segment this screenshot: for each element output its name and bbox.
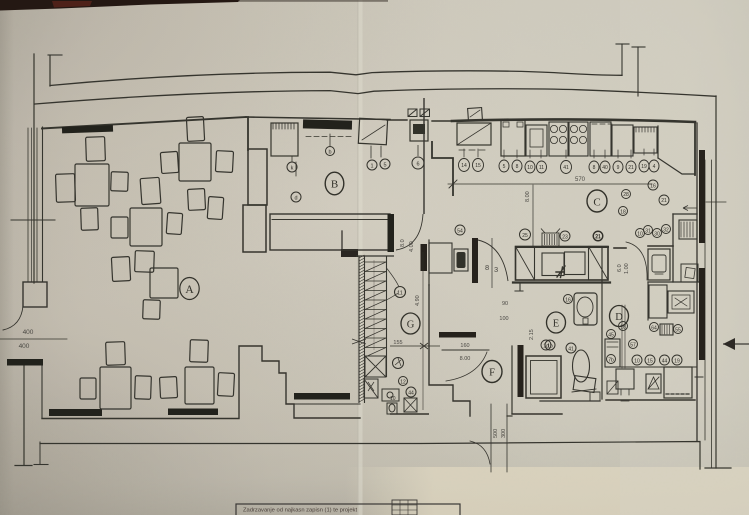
svg-text:25: 25: [522, 233, 528, 239]
svg-text:15: 15: [475, 163, 481, 169]
svg-text:16: 16: [565, 298, 571, 304]
svg-text:G: G: [407, 320, 415, 331]
svg-text:28: 28: [623, 192, 629, 198]
svg-text:41: 41: [563, 165, 569, 171]
svg-text:15: 15: [647, 359, 653, 365]
svg-text:570: 570: [575, 177, 586, 183]
svg-text:11: 11: [397, 291, 403, 297]
svg-text:400: 400: [23, 329, 34, 336]
svg-text:41: 41: [568, 347, 574, 353]
svg-text:21: 21: [628, 165, 634, 171]
svg-text:45: 45: [608, 333, 614, 339]
svg-text:18: 18: [620, 210, 626, 216]
svg-text:8: 8: [485, 263, 489, 272]
svg-text:A: A: [185, 284, 194, 296]
svg-text:5: 5: [503, 164, 506, 170]
svg-text:100: 100: [499, 316, 508, 322]
svg-text:32: 32: [663, 228, 669, 234]
svg-text:500: 500: [493, 429, 499, 438]
svg-text:C: C: [593, 197, 600, 209]
svg-text:1.00: 1.00: [624, 263, 630, 274]
svg-text:400: 400: [19, 343, 30, 350]
svg-text:F: F: [489, 368, 495, 379]
svg-text:18: 18: [620, 325, 626, 331]
svg-text:21: 21: [661, 198, 667, 204]
svg-text:90: 90: [502, 301, 508, 307]
svg-text:10: 10: [390, 396, 396, 402]
svg-text:19: 19: [641, 164, 647, 170]
svg-text:4.90: 4.90: [415, 295, 421, 306]
svg-text:300: 300: [501, 429, 507, 438]
svg-text:160: 160: [460, 343, 469, 349]
svg-text:B: B: [331, 179, 338, 191]
svg-text:64: 64: [651, 326, 657, 332]
svg-text:8: 8: [516, 164, 519, 170]
svg-text:14: 14: [461, 163, 467, 169]
svg-text:23: 23: [562, 235, 568, 241]
svg-text:19: 19: [674, 359, 680, 365]
svg-text:3: 3: [494, 265, 498, 274]
svg-text:Zadrzavanje od najkasn zapi: Zadrzavanje od najkasn zapisn (1) te pro…: [243, 508, 357, 514]
svg-text:8.00: 8.00: [525, 191, 531, 202]
svg-text:4.00: 4.00: [409, 241, 415, 252]
svg-text:10: 10: [527, 165, 533, 171]
svg-text:57: 57: [630, 343, 636, 349]
svg-text:16: 16: [650, 184, 656, 190]
svg-text:21: 21: [595, 235, 601, 241]
svg-text:b: b: [328, 150, 331, 156]
svg-text:8: 8: [593, 165, 596, 171]
svg-text:10: 10: [634, 359, 640, 365]
svg-text:55: 55: [675, 328, 681, 334]
svg-text:6: 6: [416, 162, 419, 168]
svg-text:4: 4: [653, 164, 656, 170]
svg-text:8.0: 8.0: [400, 239, 406, 247]
svg-text:155: 155: [393, 340, 402, 346]
svg-text:6.0: 6.0: [617, 264, 623, 272]
svg-text:31: 31: [645, 229, 651, 235]
svg-text:k: k: [291, 166, 294, 172]
svg-text:44: 44: [662, 359, 668, 365]
svg-text:1: 1: [370, 164, 373, 170]
svg-text:44: 44: [408, 391, 414, 397]
svg-text:9: 9: [617, 165, 620, 171]
svg-text:1d: 1d: [543, 344, 549, 350]
svg-text:30: 30: [654, 232, 660, 238]
svg-text:8.00: 8.00: [460, 356, 471, 362]
svg-text:E: E: [553, 319, 559, 330]
svg-text:D: D: [615, 312, 623, 323]
svg-text:12: 12: [400, 380, 406, 386]
svg-text:40: 40: [602, 165, 608, 171]
svg-text:11: 11: [539, 165, 544, 171]
svg-text:2.15: 2.15: [529, 329, 535, 340]
svg-text:10: 10: [637, 232, 643, 238]
svg-text:5: 5: [383, 163, 386, 169]
svg-text:7b: 7b: [608, 358, 614, 364]
svg-text:d: d: [294, 196, 297, 202]
svg-text:54: 54: [457, 229, 463, 235]
